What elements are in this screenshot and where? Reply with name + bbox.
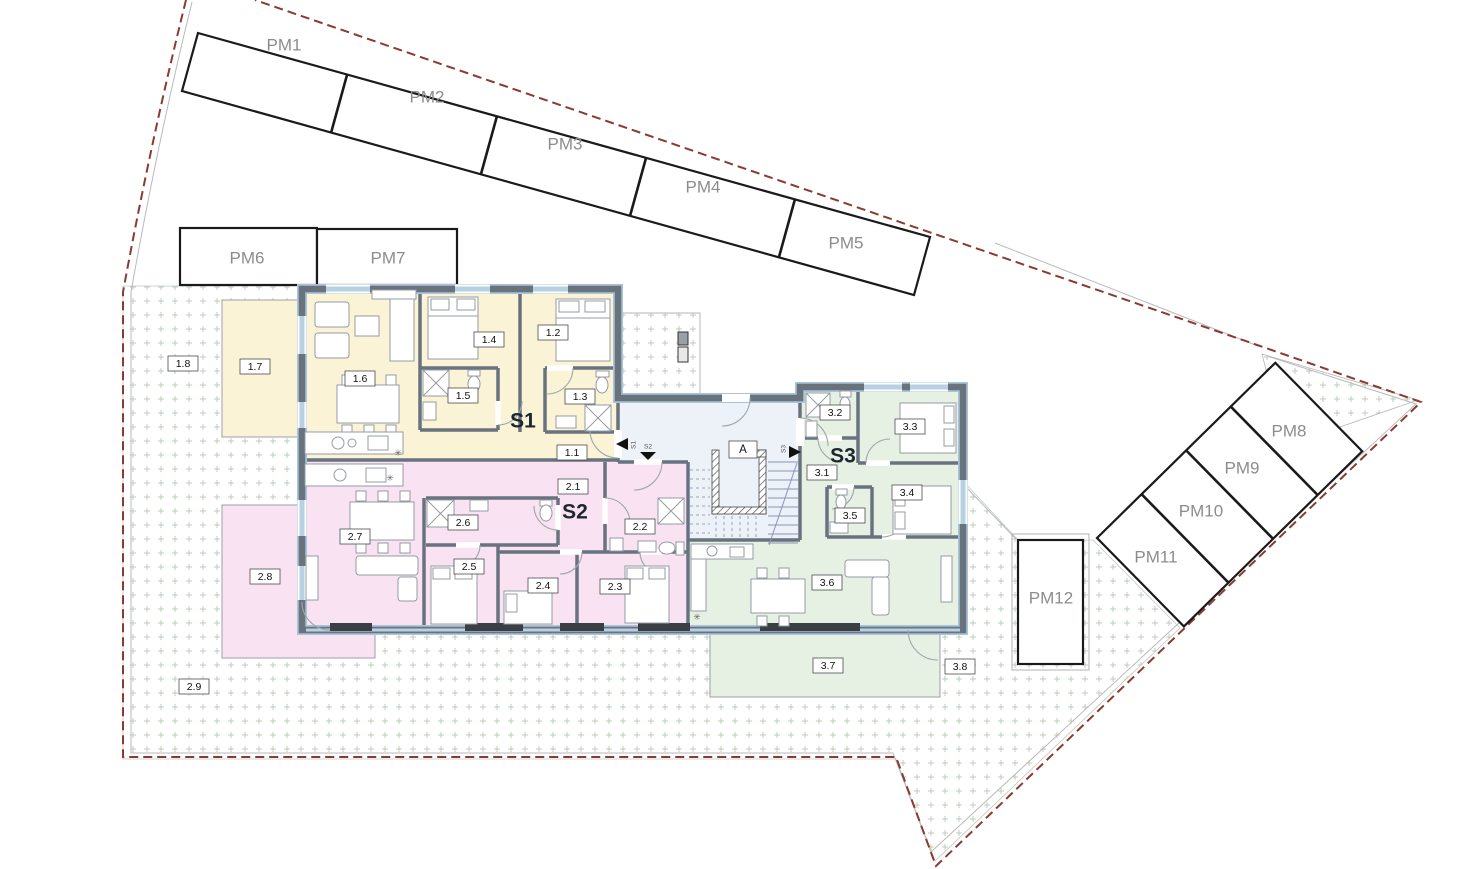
- svg-text:2.5: 2.5: [462, 561, 477, 573]
- coffee-table-icon: [355, 316, 379, 336]
- room-label: 3.5: [835, 508, 865, 523]
- parking-label-pm2: PM2: [410, 88, 445, 107]
- apartment-name-s1: S1: [510, 410, 536, 433]
- parking-label-pm11: PM11: [1134, 548, 1177, 567]
- parking-label-pm8: PM8: [1272, 422, 1307, 441]
- svg-text:3.2: 3.2: [828, 407, 843, 419]
- bed-icon: [428, 297, 478, 359]
- room-label: 2.4: [528, 578, 558, 593]
- room-label: 3.7: [813, 658, 843, 673]
- sink-icon: [423, 402, 436, 420]
- floor-plan-page: PM1 PM2 PM3 PM4 PM5 PM6 PM7 PM8 PM9 PM10…: [0, 0, 1483, 869]
- svg-text:✳: ✳: [693, 612, 701, 622]
- room-label: 1.3: [565, 389, 595, 404]
- parking-label-pm1: PM1: [267, 36, 302, 55]
- svg-text:2.6: 2.6: [456, 517, 471, 529]
- toilet-icon: [840, 391, 851, 397]
- svg-text:2.8: 2.8: [258, 571, 273, 583]
- parking-front-row: PM6 PM7: [180, 228, 457, 285]
- svg-text:1.3: 1.3: [573, 391, 588, 403]
- room-label: 1.8: [168, 356, 198, 371]
- parking-label-pm12: PM12: [1029, 589, 1073, 608]
- sink-icon: [806, 421, 817, 437]
- sink-icon: [830, 522, 848, 533]
- parking-label-pm7: PM7: [371, 249, 406, 268]
- room-label: 2.9: [179, 679, 209, 694]
- parking-pm12: PM12: [1012, 534, 1089, 670]
- room-label: 1.2: [538, 325, 568, 340]
- sink-icon: [470, 500, 488, 511]
- parking-label-pm5: PM5: [829, 234, 864, 253]
- toilet-icon: [676, 542, 684, 555]
- room-label: 2.6: [448, 515, 478, 530]
- room-label: 1.7: [240, 359, 270, 374]
- svg-text:1.8: 1.8: [176, 358, 191, 370]
- kitchen-counter-icon: [305, 432, 403, 454]
- stairwell-label: A: [729, 441, 757, 458]
- svg-text:3.5: 3.5: [843, 510, 858, 522]
- room-label: 2.2: [625, 519, 655, 534]
- apartment-name-s3: S3: [830, 445, 856, 468]
- svg-text:3.3: 3.3: [903, 421, 918, 433]
- cabinet-icon: [372, 290, 416, 299]
- svg-text:2.4: 2.4: [536, 580, 551, 592]
- parking-label-pm6: PM6: [230, 249, 265, 268]
- svg-text:3.1: 3.1: [815, 467, 830, 479]
- svg-text:1.2: 1.2: [546, 327, 561, 339]
- room-label: 2.3: [600, 579, 630, 594]
- room-label: 3.8: [945, 659, 975, 674]
- svg-text:3.6: 3.6: [820, 577, 835, 589]
- room-label: 3.2: [820, 405, 850, 420]
- svg-text:✳: ✳: [386, 473, 394, 483]
- room-label: 1.6: [345, 371, 375, 386]
- room-label: 1.4: [474, 332, 504, 347]
- svg-text:3.8: 3.8: [953, 661, 968, 673]
- shelf-icon: [390, 295, 414, 361]
- svg-text:3.4: 3.4: [900, 487, 915, 499]
- room-label: 2.1: [558, 479, 588, 494]
- svg-text:3.7: 3.7: [821, 660, 836, 672]
- room-label: 2.5: [454, 559, 484, 574]
- svg-text:2.2: 2.2: [633, 521, 648, 533]
- svg-text:✳: ✳: [394, 448, 402, 458]
- entrance-label-s1: S1: [631, 441, 638, 449]
- parking-label-pm3: PM3: [548, 135, 583, 154]
- toilet-icon: [596, 371, 609, 377]
- sink-icon: [638, 541, 656, 552]
- entrance-label-s2: S2: [644, 444, 652, 451]
- sideboard-icon: [941, 556, 952, 602]
- room-label: 2.7: [340, 529, 370, 544]
- room-label: 3.4: [892, 485, 922, 500]
- room-label: 3.3: [895, 419, 925, 434]
- toilet-icon: [836, 489, 847, 495]
- room-label: 1.5: [448, 388, 478, 403]
- svg-text:A: A: [739, 444, 747, 456]
- sofa-icon: [315, 302, 349, 327]
- svg-text:1.5: 1.5: [456, 390, 471, 402]
- svg-text:1.7: 1.7: [248, 361, 263, 373]
- bed-icon: [431, 566, 477, 624]
- room-label: 3.6: [812, 575, 842, 590]
- bed-icon: [625, 566, 669, 623]
- svg-text:1.1: 1.1: [565, 447, 580, 459]
- parking-label-pm10: PM10: [1179, 502, 1223, 521]
- apartment-name-s2: S2: [562, 501, 588, 524]
- site-plan-drawing: PM1 PM2 PM3 PM4 PM5 PM6 PM7 PM8 PM9 PM10…: [0, 0, 1483, 869]
- entrance-label-s3: S3: [781, 445, 788, 453]
- svg-text:1.4: 1.4: [482, 334, 497, 346]
- bed-icon: [504, 591, 552, 624]
- svg-text:1.6: 1.6: [353, 373, 368, 385]
- parking-label-pm9: PM9: [1225, 459, 1260, 478]
- room-label: 2.8: [250, 569, 280, 584]
- room-label: 1.1: [557, 445, 587, 460]
- svg-text:2.9: 2.9: [187, 681, 202, 693]
- svg-text:2.3: 2.3: [608, 581, 623, 593]
- sink-icon: [556, 416, 576, 428]
- svg-text:2.7: 2.7: [348, 531, 363, 543]
- toilet-icon: [468, 370, 480, 376]
- svg-text:2.1: 2.1: [566, 481, 581, 493]
- chimney-icon: [678, 332, 688, 362]
- sofa-icon: [315, 333, 349, 358]
- parking-label-pm4: PM4: [686, 178, 721, 197]
- washer-icon: [610, 538, 623, 551]
